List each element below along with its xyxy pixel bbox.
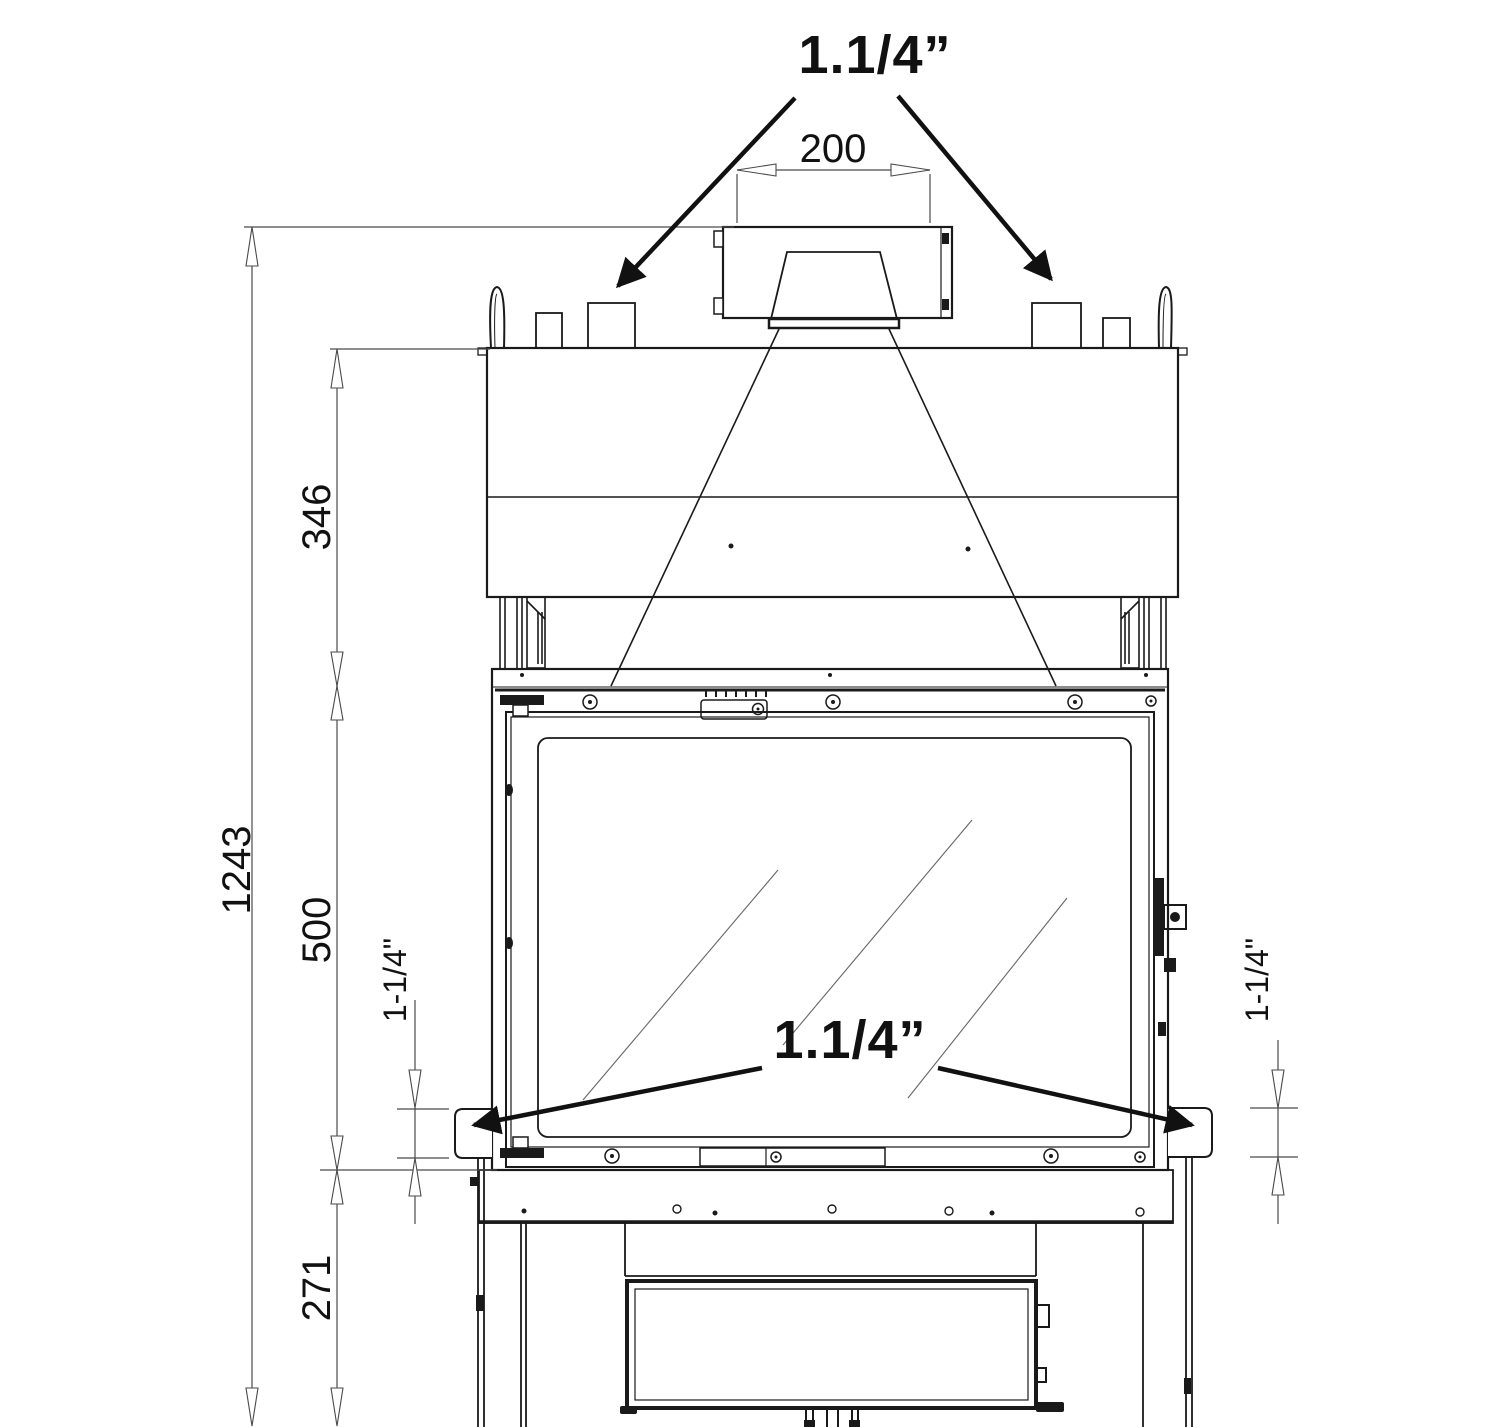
convection-body (478, 348, 1187, 597)
bottom-vent-plate (700, 1148, 885, 1166)
dim-height-chain: 346 500 271 (295, 349, 497, 1426)
left-hook-inner (495, 294, 497, 348)
side-stub-left (455, 1109, 492, 1158)
dim-bowtie (331, 686, 343, 720)
door-height-label: 500 (295, 897, 339, 964)
callout-arrow-left (618, 98, 795, 286)
ash-drawer (620, 1281, 1064, 1414)
drawer-foot (620, 1406, 637, 1414)
callout-side-connections: 1.1/4” (474, 1010, 1192, 1125)
dim-arrow-up (409, 1158, 421, 1196)
glass-reflection (583, 870, 778, 1100)
leg-bracket (476, 1295, 484, 1311)
door-handle (1154, 878, 1186, 1036)
flue-collar-box (714, 227, 952, 318)
air-vent-grille (706, 690, 766, 697)
drawer-foot (1036, 1402, 1064, 1412)
hood-rivet (729, 544, 734, 549)
left-connection-label: 1-1/4" (377, 938, 413, 1022)
frame-rivet (828, 673, 832, 677)
dim-bowtie (331, 1170, 343, 1204)
right-connection-label: 1-1/4" (1239, 938, 1275, 1022)
top-stub-small-right (1103, 318, 1130, 348)
center-legs (804, 1408, 860, 1427)
bottom-plate (470, 1170, 1173, 1223)
hood-height-label: 346 (295, 484, 339, 551)
fireplace-front-elevation-drawing: 1243 346 500 271 200 (0, 0, 1500, 1427)
dim-arrow-down (246, 1388, 258, 1426)
right-hook-inner (1163, 294, 1166, 348)
collar-left-tab (714, 231, 723, 247)
dim-arrow-up (1272, 1157, 1284, 1195)
dim-bowtie (331, 1136, 343, 1170)
flue-width-label: 200 (800, 127, 867, 171)
hood-rivet (966, 547, 971, 552)
glass-reflection (908, 898, 1067, 1098)
support-columns-right (1121, 597, 1166, 668)
body-right-ear (1178, 348, 1187, 355)
dim-arrow-down (331, 1388, 343, 1426)
leg-bracket (1184, 1378, 1191, 1394)
base-height-label: 271 (295, 1255, 339, 1322)
collar-right-bolt (942, 233, 949, 244)
side-connection-label: 1.1/4” (773, 1010, 926, 1070)
left-hinge-pin (505, 784, 513, 796)
collar-left-tab (714, 298, 723, 314)
dim-arrow-down (1272, 1070, 1284, 1108)
dim-arrow-up (331, 349, 343, 388)
dim-left-connection: 1-1/4" (377, 938, 449, 1224)
pedestal (625, 1223, 1036, 1276)
dim-right-connection: 1-1/4" (1239, 938, 1298, 1224)
dim-total-height: 1243 (215, 227, 734, 1426)
frame-rivet (520, 673, 524, 677)
hood-left-edge (611, 329, 779, 686)
callout-arrow-left (474, 1068, 762, 1125)
dim-flue-width: 200 (737, 127, 930, 223)
legs (478, 1157, 1192, 1427)
hood-right-edge (889, 329, 1056, 686)
dim-arrow-left (737, 164, 776, 176)
top-stub-small-left (536, 313, 562, 348)
drawing-canvas: 1243 346 500 271 200 (0, 0, 1500, 1427)
dimensions: 1243 346 500 271 200 (215, 25, 1298, 1426)
side-stub-right (1168, 1108, 1212, 1157)
left-hinge-pin (505, 937, 513, 949)
door-frame-inner (511, 717, 1149, 1147)
structure (455, 227, 1212, 1427)
flue-stub (771, 252, 897, 319)
left-hook (490, 287, 504, 348)
dim-arrow-up (246, 227, 258, 266)
top-connection-label: 1.1/4” (798, 25, 951, 85)
flue-collar-plate (769, 319, 899, 328)
dim-bowtie (331, 652, 343, 686)
vent-control-plate (701, 700, 767, 719)
collar-right-bolt (942, 299, 949, 310)
top-band-screws (583, 695, 1156, 709)
hood (611, 329, 1056, 686)
top-stub-large-left (588, 303, 635, 348)
door-glass (538, 738, 1131, 1137)
callout-arrow-right (898, 96, 1051, 279)
total-height-label: 1243 (215, 826, 259, 915)
support-columns-left (500, 597, 545, 668)
dim-arrow-down (409, 1070, 421, 1108)
top-stub-large-right (1032, 303, 1081, 348)
frame-rivet (1144, 673, 1148, 677)
dim-arrow-right (891, 164, 930, 176)
bottom-band-screws (605, 1149, 1145, 1163)
